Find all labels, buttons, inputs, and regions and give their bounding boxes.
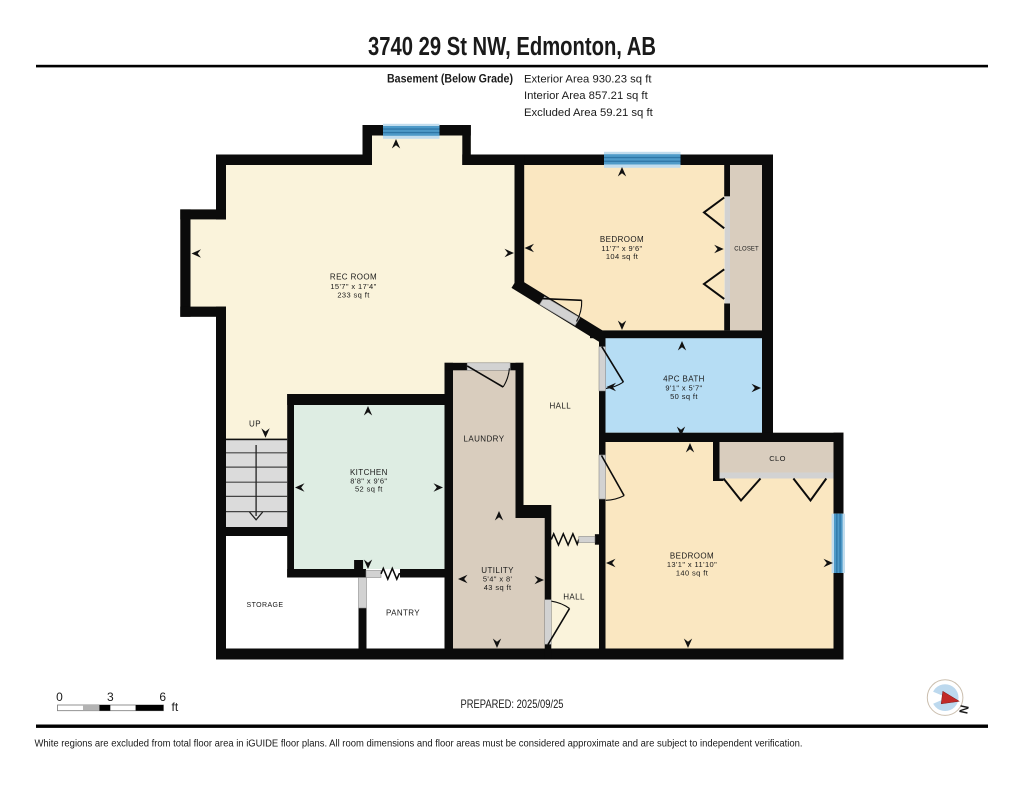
svg-text:Exterior Area 930.23 sq ft: Exterior Area 930.23 sq ft [524,74,652,86]
svg-text:13'1" x 11'10": 13'1" x 11'10" [667,560,717,569]
svg-text:CLO: CLO [769,454,786,463]
svg-text:STORAGE: STORAGE [247,602,284,609]
svg-text:3740 29 St NW, Edmonton, AB: 3740 29 St NW, Edmonton, AB [368,33,656,61]
svg-text:Interior Area 857.21 sq ft: Interior Area 857.21 sq ft [524,90,649,102]
svg-text:PANTRY: PANTRY [386,609,420,618]
svg-text:50 sq ft: 50 sq ft [670,392,698,401]
svg-text:ft: ft [172,700,179,714]
svg-text:52 sq ft: 52 sq ft [355,485,383,494]
svg-text:REC ROOM: REC ROOM [330,273,377,282]
svg-text:Basement (Below Grade): Basement (Below Grade) [387,72,513,86]
svg-text:104 sq ft: 104 sq ft [606,252,639,261]
svg-text:6: 6 [159,690,166,704]
svg-text:PREPARED: 2025/09/25: PREPARED: 2025/09/25 [461,697,564,711]
svg-text:3: 3 [107,690,114,704]
svg-text:0: 0 [56,690,63,704]
svg-text:233 sq ft: 233 sq ft [337,290,370,299]
svg-text:LAUNDRY: LAUNDRY [464,435,505,444]
svg-text:BEDROOM: BEDROOM [670,551,714,560]
svg-text:4PC BATH: 4PC BATH [663,375,705,384]
svg-text:White regions are excluded fro: White regions are excluded from total fl… [35,738,803,749]
svg-text:BEDROOM: BEDROOM [600,235,644,244]
svg-text:43 sq ft: 43 sq ft [484,583,512,592]
svg-text:UP: UP [249,420,261,429]
svg-text:140 sq ft: 140 sq ft [676,569,709,578]
svg-text:HALL: HALL [563,593,585,602]
svg-text:CLOSET: CLOSET [734,247,759,253]
svg-text:HALL: HALL [549,401,571,410]
svg-text:Excluded Area 59.21 sq ft: Excluded Area 59.21 sq ft [524,107,654,119]
